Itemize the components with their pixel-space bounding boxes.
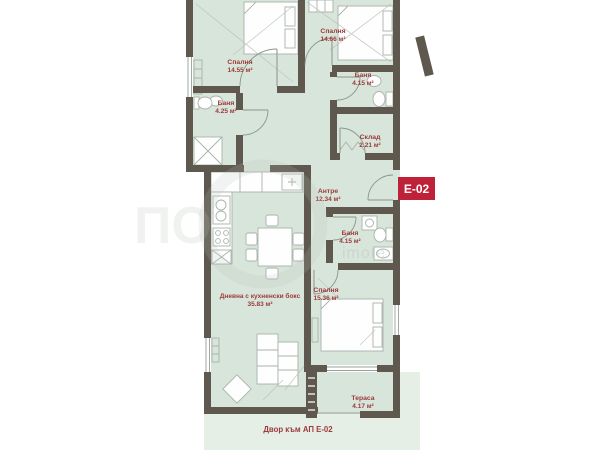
- svg-text:Спалня: Спалня: [320, 28, 345, 35]
- bed-double-3: [312, 299, 383, 351]
- svg-text:Баня: Баня: [218, 100, 235, 107]
- svg-text:Дневна с кухненски бокс: Дневна с кухненски бокс: [220, 292, 301, 300]
- svg-text:2.21 м²: 2.21 м²: [359, 142, 381, 149]
- bed-double-1: [244, 2, 298, 54]
- svg-text:Тераса: Тераса: [351, 395, 374, 402]
- apartment-badge: E-02: [398, 177, 435, 200]
- svg-text:15.36 м²: 15.36 м²: [313, 295, 339, 302]
- room-label-bedroom-3: Спалня 15.36 м²: [313, 287, 339, 302]
- room-label-bedroom-1: Спалня 14.55 м²: [227, 59, 253, 74]
- window-right: [393, 305, 400, 335]
- bed-double-2: [338, 6, 393, 60]
- svg-text:35.83 м²: 35.83 м²: [247, 301, 273, 308]
- svg-text:4.25 м²: 4.25 м²: [215, 108, 237, 115]
- svg-text:12.34 м²: 12.34 м²: [315, 196, 341, 203]
- svg-text:Склад: Склад: [360, 134, 381, 141]
- svg-text:14.66 м²: 14.66 м²: [320, 36, 346, 43]
- window-left-upper: [186, 57, 193, 97]
- badge-text: E-02: [404, 182, 430, 196]
- floor-plan-page: Спалня 14.55 м² Спалня 14.66 м² Баня 4.1…: [0, 0, 600, 450]
- terrace-sliding-door: [327, 365, 377, 372]
- room-label-bathroom-1: Баня 4.15 м²: [352, 72, 374, 87]
- room-label-hallway: Антре 12.34 м²: [315, 188, 341, 203]
- svg-text:14.55 м²: 14.55 м²: [227, 67, 253, 74]
- yard-label: Двор към АП Е-02: [263, 425, 333, 434]
- svg-text:Баня: Баня: [355, 72, 372, 79]
- svg-text:4.15 м²: 4.15 м²: [339, 238, 361, 245]
- window-left-lower: [204, 338, 211, 372]
- adjacent-structure: [415, 36, 433, 77]
- room-label-bathroom-2: Баня 4.25 м²: [215, 100, 237, 115]
- svg-text:Спалня: Спалня: [227, 59, 252, 66]
- svg-text:Антре: Антре: [318, 188, 338, 195]
- room-label-bedroom-2: Спалня 14.66 м²: [320, 28, 346, 43]
- room-label-storage: Склад 2.21 м²: [359, 134, 381, 149]
- svg-text:4.15 м²: 4.15 м²: [352, 80, 374, 87]
- floor-plan-drawing: Спалня 14.55 м² Спалня 14.66 м² Баня 4.1…: [0, 0, 600, 450]
- svg-text:Баня: Баня: [342, 230, 359, 237]
- svg-text:4.17 м²: 4.17 м²: [352, 403, 374, 410]
- svg-text:Спалня: Спалня: [313, 287, 338, 294]
- room-label-terrace: Тераса 4.17 м²: [351, 395, 374, 410]
- room-label-bathroom-3: Баня 4.15 м²: [339, 230, 361, 245]
